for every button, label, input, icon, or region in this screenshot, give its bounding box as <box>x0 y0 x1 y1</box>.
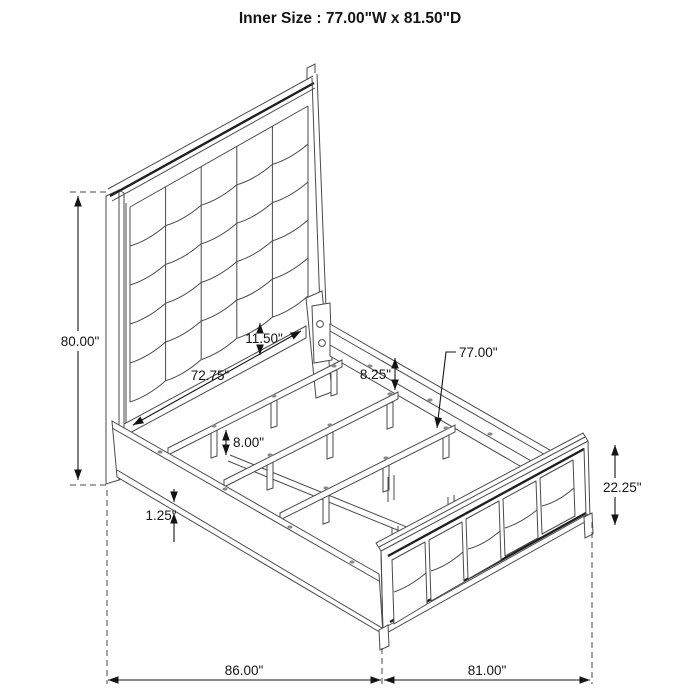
support-leg <box>267 462 273 490</box>
support-leg <box>387 402 393 429</box>
support-leg <box>271 399 277 428</box>
dim-label-rail-height: 8.25" <box>360 367 391 382</box>
dim-label-headboard-height: 80.00" <box>61 334 100 349</box>
dim-label-slat-length: 77.00" <box>459 345 498 360</box>
diagram-title: Inner Size : 77.00"W x 81.50"D <box>239 10 461 27</box>
support-leg <box>323 495 329 524</box>
headboard-tufted-panel <box>130 106 308 402</box>
dim-label-overall-width: 81.00" <box>468 663 507 678</box>
diagram-page: Inner Size : 77.00"W x 81.50"D <box>0 0 700 700</box>
bed-dimension-diagram: Inner Size : 77.00"W x 81.50"D <box>0 0 700 700</box>
dim-label-rail-lip: 1.25" <box>145 508 176 523</box>
dim-label-leg-height: 8.00" <box>233 435 264 450</box>
near-side-rail <box>112 421 383 634</box>
footboard <box>376 433 593 650</box>
footboard-foot <box>379 625 389 650</box>
support-leg <box>331 370 337 396</box>
dim-overall-depth: 86.00" <box>108 663 381 680</box>
dim-leg-height: 8.00" <box>226 430 264 455</box>
dim-label-footboard-height: 22.25" <box>603 480 642 495</box>
support-leg <box>327 431 333 459</box>
rail-bracket <box>312 303 332 363</box>
dim-label-inner-width: 72.75" <box>191 368 230 383</box>
dim-footboard-height: 22.25" <box>603 445 642 525</box>
dim-headboard-height: 80.00" <box>61 196 100 480</box>
dim-label-overall-depth: 86.00" <box>225 663 264 678</box>
dim-overall-width: 81.00" <box>384 663 590 680</box>
